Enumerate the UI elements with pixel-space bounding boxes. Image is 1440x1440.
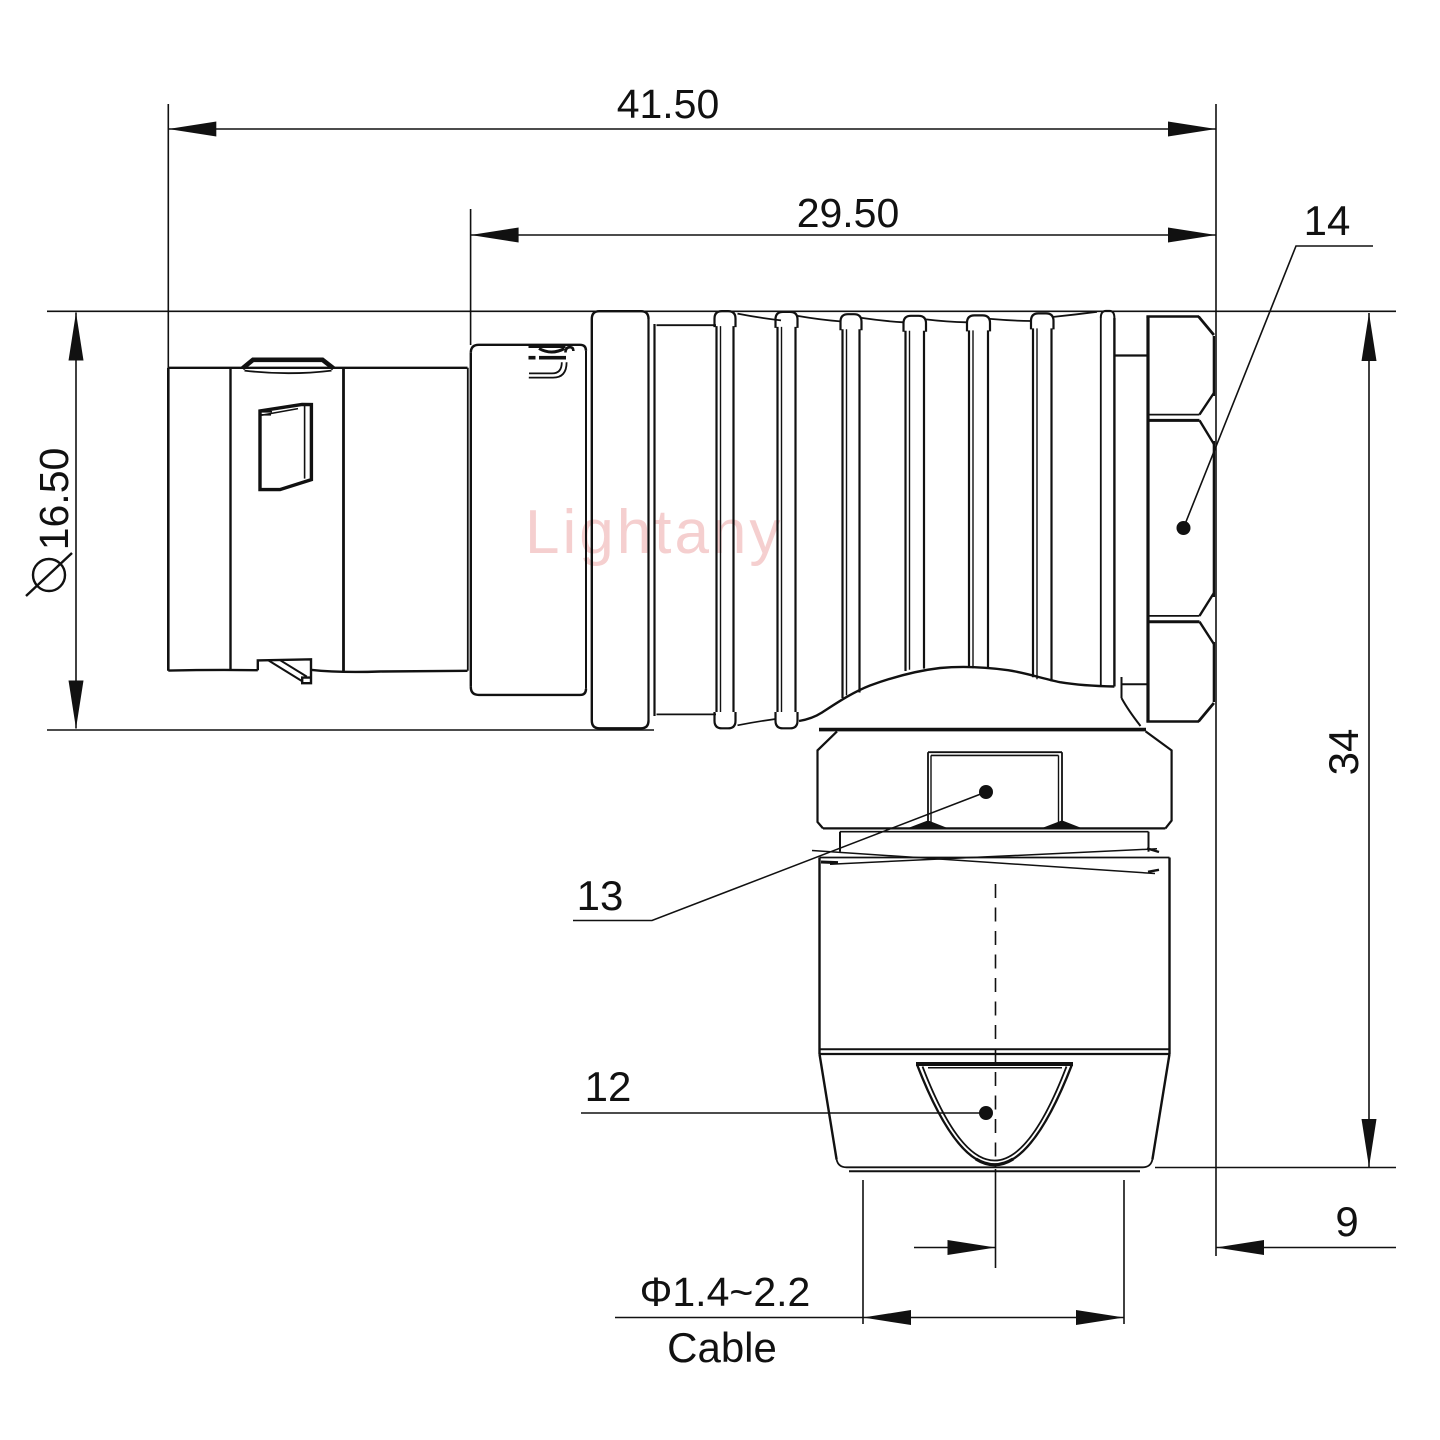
svg-text:29.50: 29.50 (797, 190, 900, 236)
svg-text:9: 9 (1335, 1198, 1358, 1245)
svg-text:41.50: 41.50 (617, 81, 720, 127)
svg-text:16.50: 16.50 (31, 448, 77, 551)
svg-text:Φ1.4~2.2: Φ1.4~2.2 (640, 1269, 811, 1315)
svg-text:34: 34 (1320, 729, 1367, 776)
svg-text:14: 14 (1304, 197, 1351, 244)
svg-text:12: 12 (585, 1063, 632, 1110)
svg-text:13: 13 (577, 872, 624, 919)
svg-text:Cable: Cable (667, 1324, 777, 1371)
